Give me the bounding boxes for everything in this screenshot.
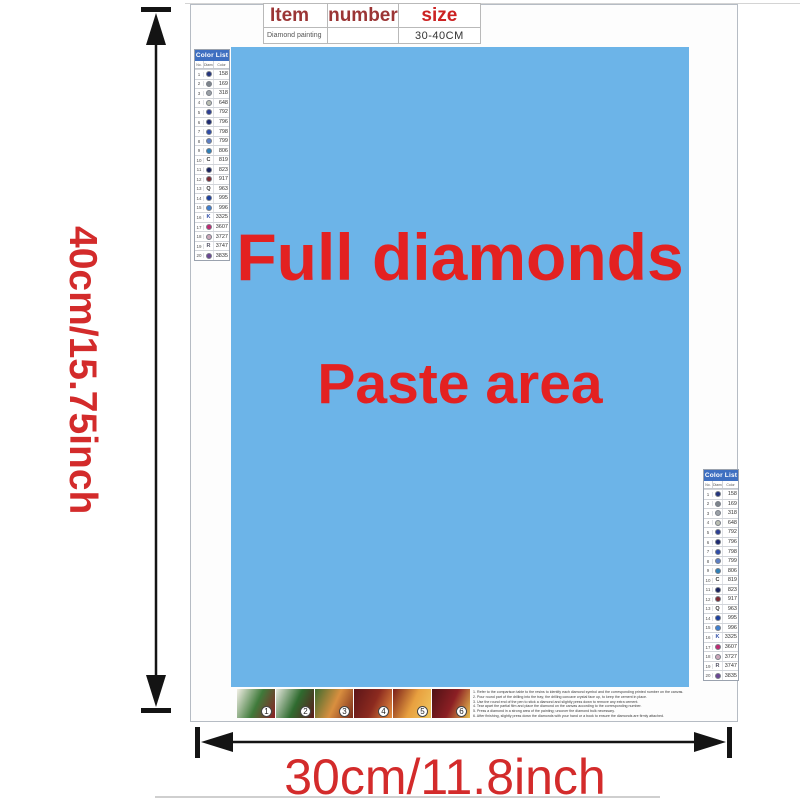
color-list-row-number: 9 xyxy=(195,148,204,153)
color-list-row: 19R3747 xyxy=(704,661,738,671)
instruction-text-block: 1. Refer to the comparison table to the … xyxy=(473,690,695,720)
color-list-row-number: 19 xyxy=(704,664,713,669)
step-thumbnail-image: 2 xyxy=(276,689,314,718)
step-number-badge: 1 xyxy=(261,706,272,717)
color-list-column-header: No. xyxy=(195,61,204,68)
color-list-row: 8799 xyxy=(704,556,738,566)
color-list-row: 16K3325 xyxy=(195,212,229,222)
color-list-row-symbol: R xyxy=(713,662,723,671)
canvas-sheet: Item number size Diamond painting 30-40C… xyxy=(190,4,738,722)
color-list-row-number: 2 xyxy=(195,81,204,86)
color-list-row-symbol xyxy=(713,557,723,566)
color-list-row: 13Q963 xyxy=(704,604,738,614)
color-list-column-header: Color xyxy=(723,481,738,488)
color-list-title: Color List xyxy=(704,470,738,481)
color-list-row: 11823 xyxy=(704,584,738,594)
color-list-row: 14995 xyxy=(195,193,229,203)
color-list-row-number: 11 xyxy=(704,587,713,592)
color-list-row-symbol xyxy=(204,99,214,108)
color-list-row-symbol: Q xyxy=(713,605,723,614)
color-list-row-number: 10 xyxy=(195,158,204,163)
color-list-row-number: 20 xyxy=(195,253,204,258)
color-list-column-header: No. xyxy=(704,481,713,488)
color-list-row-symbol: Q xyxy=(204,185,214,194)
color-list-row-number: 7 xyxy=(195,129,204,134)
color-list-row: 12917 xyxy=(195,174,229,184)
diamond-color-dot xyxy=(206,148,212,154)
color-list-row-number: 15 xyxy=(704,625,713,630)
color-list-row-number: 8 xyxy=(704,559,713,564)
color-list-row-code: 799 xyxy=(214,138,229,144)
paste-area-title-line1: Full diamonds xyxy=(231,219,689,295)
color-list-row-symbol xyxy=(713,566,723,575)
diamond-color-dot xyxy=(206,90,212,96)
step-thumbnail-image: 1 xyxy=(237,689,275,718)
color-list-row-code: 648 xyxy=(723,520,738,526)
color-list-row-symbol xyxy=(204,118,214,127)
step-number-badge: 2 xyxy=(300,706,311,717)
diamond-color-dot xyxy=(715,625,721,631)
color-list-row-symbol xyxy=(713,614,723,623)
diamond-color-dot xyxy=(206,167,212,173)
instruction-line: 6. After finishing, slightly press down … xyxy=(473,714,695,719)
color-list-row-number: 13 xyxy=(704,606,713,611)
table-header-item: Item xyxy=(264,4,328,28)
table-header-size: size xyxy=(398,4,480,28)
height-dimension-label: 40cm/15.75inch xyxy=(60,205,104,535)
color-list-row-code: 798 xyxy=(214,129,229,135)
table-cell-size: 30-40CM xyxy=(398,28,480,44)
color-list-row-symbol: C xyxy=(204,156,214,165)
color-list-row: 8799 xyxy=(195,136,229,146)
color-list-row-symbol xyxy=(713,595,723,604)
diamond-color-dot xyxy=(715,644,721,650)
color-list-row-code: 169 xyxy=(214,81,229,87)
color-list-row-code: 996 xyxy=(214,205,229,211)
horizontal-arrow-left-head xyxy=(201,732,233,752)
diamond-symbol-letter: K xyxy=(716,634,720,640)
color-list-row: 10C819 xyxy=(704,575,738,585)
color-list-row-number: 6 xyxy=(195,120,204,125)
diamond-color-dot xyxy=(206,253,212,259)
color-list-row-symbol xyxy=(713,652,723,661)
horizontal-arrow-right-head xyxy=(694,732,726,752)
color-list-row-code: 995 xyxy=(214,195,229,201)
color-list-row-code: 3325 xyxy=(723,634,738,640)
vertical-arrow-down-head xyxy=(146,675,166,707)
color-list-row-symbol xyxy=(713,500,723,509)
color-list-row-code: 799 xyxy=(723,558,738,564)
color-list-row-number: 16 xyxy=(195,215,204,220)
color-list-row-code: 3747 xyxy=(723,663,738,669)
color-list-row: 15996 xyxy=(195,203,229,213)
color-list-row: 16K3325 xyxy=(704,632,738,642)
color-list-row-number: 3 xyxy=(195,91,204,96)
color-list-row: 6796 xyxy=(704,537,738,547)
color-list-row: 3318 xyxy=(704,508,738,518)
diamond-color-dot xyxy=(206,195,212,201)
color-list-row-number: 5 xyxy=(195,110,204,115)
diamond-symbol-letter: C xyxy=(207,157,211,163)
diamond-symbol-letter: R xyxy=(207,243,211,249)
diamond-color-dot xyxy=(715,510,721,516)
color-list-row-symbol xyxy=(204,137,214,146)
color-list-row-number: 18 xyxy=(195,234,204,239)
color-list-row: 13Q963 xyxy=(195,184,229,194)
diamond-symbol-letter: Q xyxy=(206,186,210,192)
color-list-row-code: 648 xyxy=(214,100,229,106)
color-list-row: 183727 xyxy=(195,231,229,241)
color-list-row-code: 3835 xyxy=(214,253,229,259)
color-list-row-code: 3835 xyxy=(723,673,738,679)
horizontal-arrow-left-cap xyxy=(195,727,200,758)
color-list-row-code: 3607 xyxy=(214,224,229,230)
color-list-row-code: 996 xyxy=(723,625,738,631)
diamond-symbol-letter: C xyxy=(716,577,720,583)
paste-area: Full diamonds Paste area xyxy=(231,47,689,687)
color-list-row: 1158 xyxy=(704,489,738,499)
color-list-row-number: 4 xyxy=(195,100,204,105)
color-list-row: 12917 xyxy=(704,594,738,604)
color-list-row-code: 917 xyxy=(214,176,229,182)
color-list-row-symbol xyxy=(204,89,214,98)
color-list-row: 9806 xyxy=(195,145,229,155)
color-list-row: 5792 xyxy=(195,107,229,117)
color-list-row-number: 20 xyxy=(704,673,713,678)
color-list-row: 203835 xyxy=(195,250,229,260)
color-list-row-symbol: C xyxy=(713,576,723,585)
step-number-badge: 3 xyxy=(339,706,350,717)
diamond-color-dot xyxy=(715,558,721,564)
step-thumbnail-image: 5 xyxy=(393,689,431,718)
color-list-row-code: 819 xyxy=(214,157,229,163)
color-list-column-headers: No.DiamondColor xyxy=(704,481,738,489)
color-list-row-code: 798 xyxy=(723,549,738,555)
color-list-row-number: 5 xyxy=(704,530,713,535)
color-list-row-symbol xyxy=(204,146,214,155)
color-list-row: 4648 xyxy=(704,518,738,528)
color-list-row-symbol xyxy=(713,528,723,537)
diamond-color-dot xyxy=(206,224,212,230)
color-list-row: 1158 xyxy=(195,69,229,79)
diamond-color-dot xyxy=(206,129,212,135)
diamond-color-dot xyxy=(715,654,721,660)
diamond-symbol-letter: R xyxy=(716,663,720,669)
color-list-row-code: 806 xyxy=(723,568,738,574)
diamond-color-dot xyxy=(715,501,721,507)
color-list-row-number: 12 xyxy=(704,597,713,602)
color-list-row: 14995 xyxy=(704,613,738,623)
step-thumbnail-image: 4 xyxy=(354,689,392,718)
color-list-row-code: 3747 xyxy=(214,243,229,249)
diamond-color-dot xyxy=(206,176,212,182)
color-list-row-number: 14 xyxy=(195,196,204,201)
table-cell-item: Diamond painting xyxy=(264,28,328,44)
color-list-row-code: 819 xyxy=(723,577,738,583)
color-list-row-symbol xyxy=(713,643,723,652)
color-list-row-code: 806 xyxy=(214,148,229,154)
color-list-row-number: 3 xyxy=(704,511,713,516)
diamond-color-dot xyxy=(206,109,212,115)
diamond-color-dot xyxy=(715,596,721,602)
color-list-row-number: 12 xyxy=(195,177,204,182)
color-list-row: 6796 xyxy=(195,117,229,127)
instruction-step-thumbnails: 123456 xyxy=(237,689,470,718)
diamond-symbol-letter: K xyxy=(207,214,211,220)
diamond-color-dot xyxy=(206,71,212,77)
color-list-row-number: 11 xyxy=(195,167,204,172)
color-list-row: 183727 xyxy=(704,651,738,661)
color-list-row-symbol xyxy=(204,223,214,232)
color-list-row-symbol xyxy=(713,490,723,499)
step-thumbnail-image: 6 xyxy=(432,689,470,718)
step-thumbnail-image: 3 xyxy=(315,689,353,718)
color-list-row-number: 9 xyxy=(704,568,713,573)
color-list-row: 7798 xyxy=(704,546,738,556)
diamond-color-dot xyxy=(715,673,721,679)
color-list-row: 10C819 xyxy=(195,155,229,165)
color-list-row-symbol xyxy=(713,585,723,594)
color-list-row-number: 2 xyxy=(704,501,713,506)
paste-area-title-line2: Paste area xyxy=(231,351,689,417)
color-list-row-code: 796 xyxy=(214,119,229,125)
color-list-row-symbol: R xyxy=(204,242,214,251)
diamond-color-dot xyxy=(715,520,721,526)
step-number-badge: 5 xyxy=(417,706,428,717)
color-list-row: 2169 xyxy=(195,79,229,89)
color-list-row-code: 963 xyxy=(723,606,738,612)
color-list-row-symbol xyxy=(204,108,214,117)
color-list-row-number: 13 xyxy=(195,186,204,191)
color-list-row-number: 6 xyxy=(704,540,713,545)
color-list-row: 9806 xyxy=(704,565,738,575)
color-list-row-number: 1 xyxy=(195,72,204,77)
color-list-row-code: 3325 xyxy=(214,214,229,220)
color-list-row: 173607 xyxy=(704,642,738,652)
width-dimension-label: 30cm/11.8inch xyxy=(245,748,645,800)
color-list-row-code: 792 xyxy=(723,529,738,535)
color-list-row-code: 3727 xyxy=(723,654,738,660)
diamond-color-dot xyxy=(206,100,212,106)
color-list-row: 5792 xyxy=(704,527,738,537)
color-list-row-symbol: K xyxy=(204,213,214,222)
item-size-table: Item number size Diamond painting 30-40C… xyxy=(263,3,481,44)
color-list-row-code: 963 xyxy=(214,186,229,192)
color-list-row-symbol xyxy=(204,165,214,174)
color-list-row-code: 823 xyxy=(723,587,738,593)
vertical-arrow-bottom-cap xyxy=(141,708,171,713)
color-list-row: 19R3747 xyxy=(195,241,229,251)
color-list-row-symbol xyxy=(204,175,214,184)
color-list-row-symbol xyxy=(713,671,723,680)
diamond-color-dot xyxy=(715,549,721,555)
color-list-column-header: Diamond xyxy=(713,481,723,488)
color-list-row-symbol xyxy=(204,251,214,260)
color-list-row-code: 3607 xyxy=(723,644,738,650)
color-list-row-number: 18 xyxy=(704,654,713,659)
color-list-row: 15996 xyxy=(704,623,738,633)
color-list-row-code: 995 xyxy=(723,615,738,621)
color-list-row-symbol xyxy=(713,509,723,518)
color-list-row-symbol xyxy=(713,547,723,556)
color-list-row-symbol xyxy=(204,232,214,241)
color-list-row-symbol xyxy=(713,538,723,547)
diamond-color-dot xyxy=(206,119,212,125)
color-list-row-symbol xyxy=(204,204,214,213)
color-list-column-header: Diamond xyxy=(204,61,214,68)
diamond-symbol-letter: Q xyxy=(715,606,719,612)
color-list-row-symbol xyxy=(204,127,214,136)
color-list-row-code: 796 xyxy=(723,539,738,545)
color-list-row: 173607 xyxy=(195,222,229,232)
diamond-color-dot xyxy=(206,138,212,144)
color-list-row-code: 792 xyxy=(214,109,229,115)
color-list-row-number: 19 xyxy=(195,244,204,249)
diamond-color-dot xyxy=(715,615,721,621)
color-list-row-number: 4 xyxy=(704,520,713,525)
color-list-row-number: 8 xyxy=(195,139,204,144)
color-list-row-number: 17 xyxy=(704,645,713,650)
color-list-right: Color ListNo.DiamondColor115821693318464… xyxy=(703,469,739,681)
diamond-color-dot xyxy=(206,234,212,240)
color-list-row-number: 17 xyxy=(195,225,204,230)
color-list-row-code: 169 xyxy=(723,501,738,507)
color-list-row-code: 3727 xyxy=(214,234,229,240)
color-list-row-symbol: K xyxy=(713,633,723,642)
color-list-row-number: 10 xyxy=(704,578,713,583)
color-list-row-code: 158 xyxy=(214,71,229,77)
color-list-row-number: 15 xyxy=(195,205,204,210)
color-list-row-code: 917 xyxy=(723,596,738,602)
color-list-row: 4648 xyxy=(195,98,229,108)
color-list-row-code: 823 xyxy=(214,167,229,173)
diamond-color-dot xyxy=(206,81,212,87)
color-list-row-code: 318 xyxy=(214,90,229,96)
color-list-row-symbol xyxy=(713,519,723,528)
color-list-row: 3318 xyxy=(195,88,229,98)
color-list-row-number: 14 xyxy=(704,616,713,621)
color-list-row: 7798 xyxy=(195,126,229,136)
diamond-color-dot xyxy=(715,587,721,593)
color-list-column-headers: No.DiamondColor xyxy=(195,61,229,69)
color-list-row: 203835 xyxy=(704,670,738,680)
horizontal-arrow-right-cap xyxy=(727,727,732,758)
table-header-number: number xyxy=(328,4,399,28)
diamond-color-dot xyxy=(715,491,721,497)
diamond-color-dot xyxy=(715,529,721,535)
color-list-row-number: 7 xyxy=(704,549,713,554)
diamond-color-dot xyxy=(715,539,721,545)
color-list-left: Color ListNo.DiamondColor115821693318464… xyxy=(194,49,230,261)
color-list-row: 2169 xyxy=(704,499,738,509)
color-list-row-symbol xyxy=(204,80,214,89)
color-list-title: Color List xyxy=(195,50,229,61)
step-number-badge: 4 xyxy=(378,706,389,717)
color-list-row-symbol xyxy=(204,70,214,79)
color-list-row-symbol xyxy=(204,194,214,203)
table-cell-number xyxy=(328,28,399,44)
color-list-row-number: 1 xyxy=(704,492,713,497)
color-list-row-number: 16 xyxy=(704,635,713,640)
diamond-color-dot xyxy=(715,568,721,574)
step-number-badge: 6 xyxy=(456,706,467,717)
color-list-row-symbol xyxy=(713,624,723,633)
vertical-arrow-up-head xyxy=(146,13,166,45)
color-list-row-code: 318 xyxy=(723,510,738,516)
vertical-arrow-top-cap xyxy=(141,7,171,12)
color-list-column-header: Color xyxy=(214,61,229,68)
color-list-row: 11823 xyxy=(195,164,229,174)
color-list-row-code: 158 xyxy=(723,491,738,497)
diamond-color-dot xyxy=(206,205,212,211)
product-image: Item number size Diamond painting 30-40C… xyxy=(0,0,800,800)
